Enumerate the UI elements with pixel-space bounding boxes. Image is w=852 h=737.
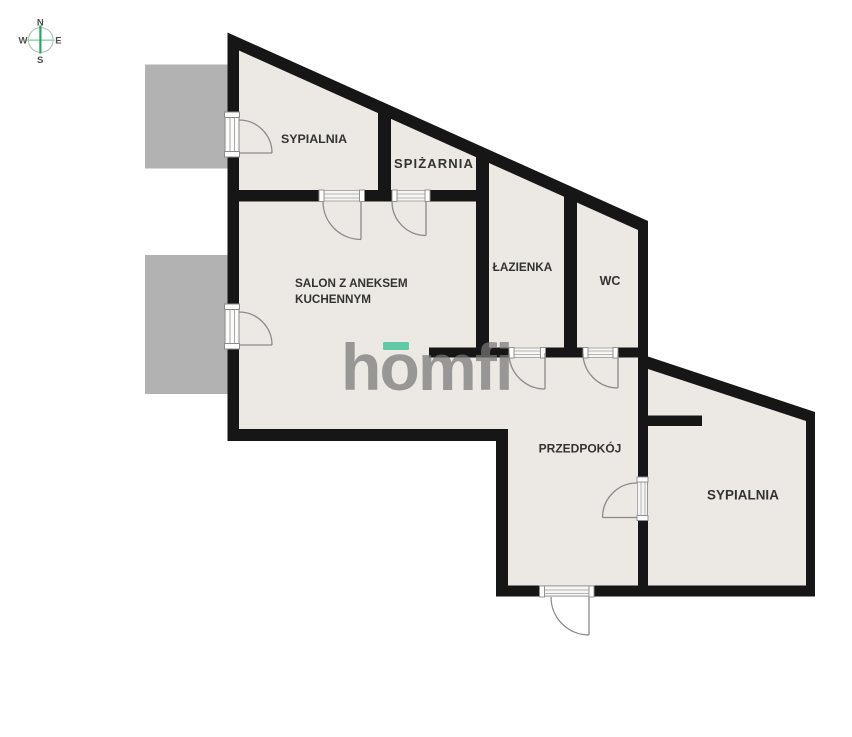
svg-text:SYPIALNIA: SYPIALNIA <box>281 132 347 146</box>
svg-text:N: N <box>37 18 44 29</box>
svg-text:homfi: homfi <box>341 330 512 404</box>
svg-text:S: S <box>37 55 43 66</box>
svg-text:ŁAZIENKA: ŁAZIENKA <box>493 260 553 274</box>
svg-text:WC: WC <box>600 274 621 288</box>
svg-text:PRZEDPOKÓJ: PRZEDPOKÓJ <box>539 441 622 456</box>
svg-text:SALON Z ANEKSEM: SALON Z ANEKSEM <box>295 277 408 290</box>
svg-text:SYPIALNIA: SYPIALNIA <box>707 488 779 503</box>
svg-text:E: E <box>55 36 61 47</box>
svg-text:SPIŻARNIA: SPIŻARNIA <box>394 156 474 171</box>
svg-text:KUCHENNYM: KUCHENNYM <box>295 293 371 306</box>
svg-text:W: W <box>19 36 28 47</box>
